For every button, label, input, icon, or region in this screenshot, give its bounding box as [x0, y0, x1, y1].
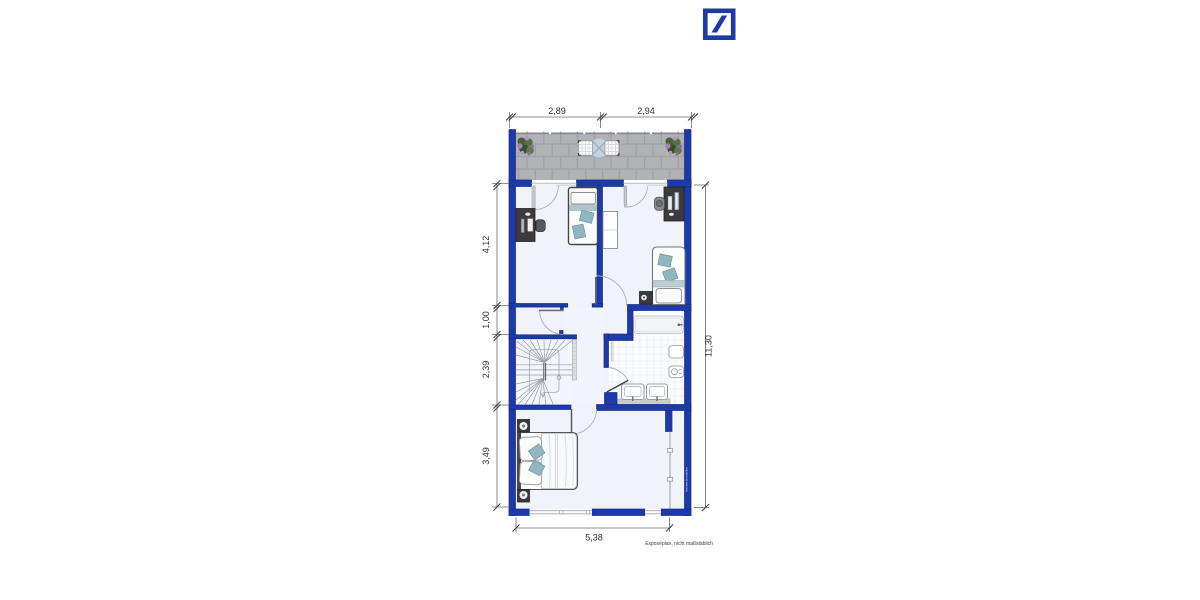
svg-text:2,39: 2,39 [481, 361, 491, 379]
svg-text:3,49: 3,49 [481, 447, 491, 465]
svg-text:2,89: 2,89 [548, 106, 566, 116]
svg-text:1,00: 1,00 [481, 311, 491, 329]
svg-text:4,12: 4,12 [481, 236, 491, 254]
svg-text:2,94: 2,94 [637, 106, 655, 116]
svg-text:11,30: 11,30 [704, 335, 714, 357]
svg-text:Exposéplan, nicht maßstäblich: Exposéplan, nicht maßstäblich [645, 541, 713, 547]
svg-text:5,38: 5,38 [585, 533, 603, 543]
svg-text:Hochwertimmobilien: Hochwertimmobilien [685, 466, 689, 492]
